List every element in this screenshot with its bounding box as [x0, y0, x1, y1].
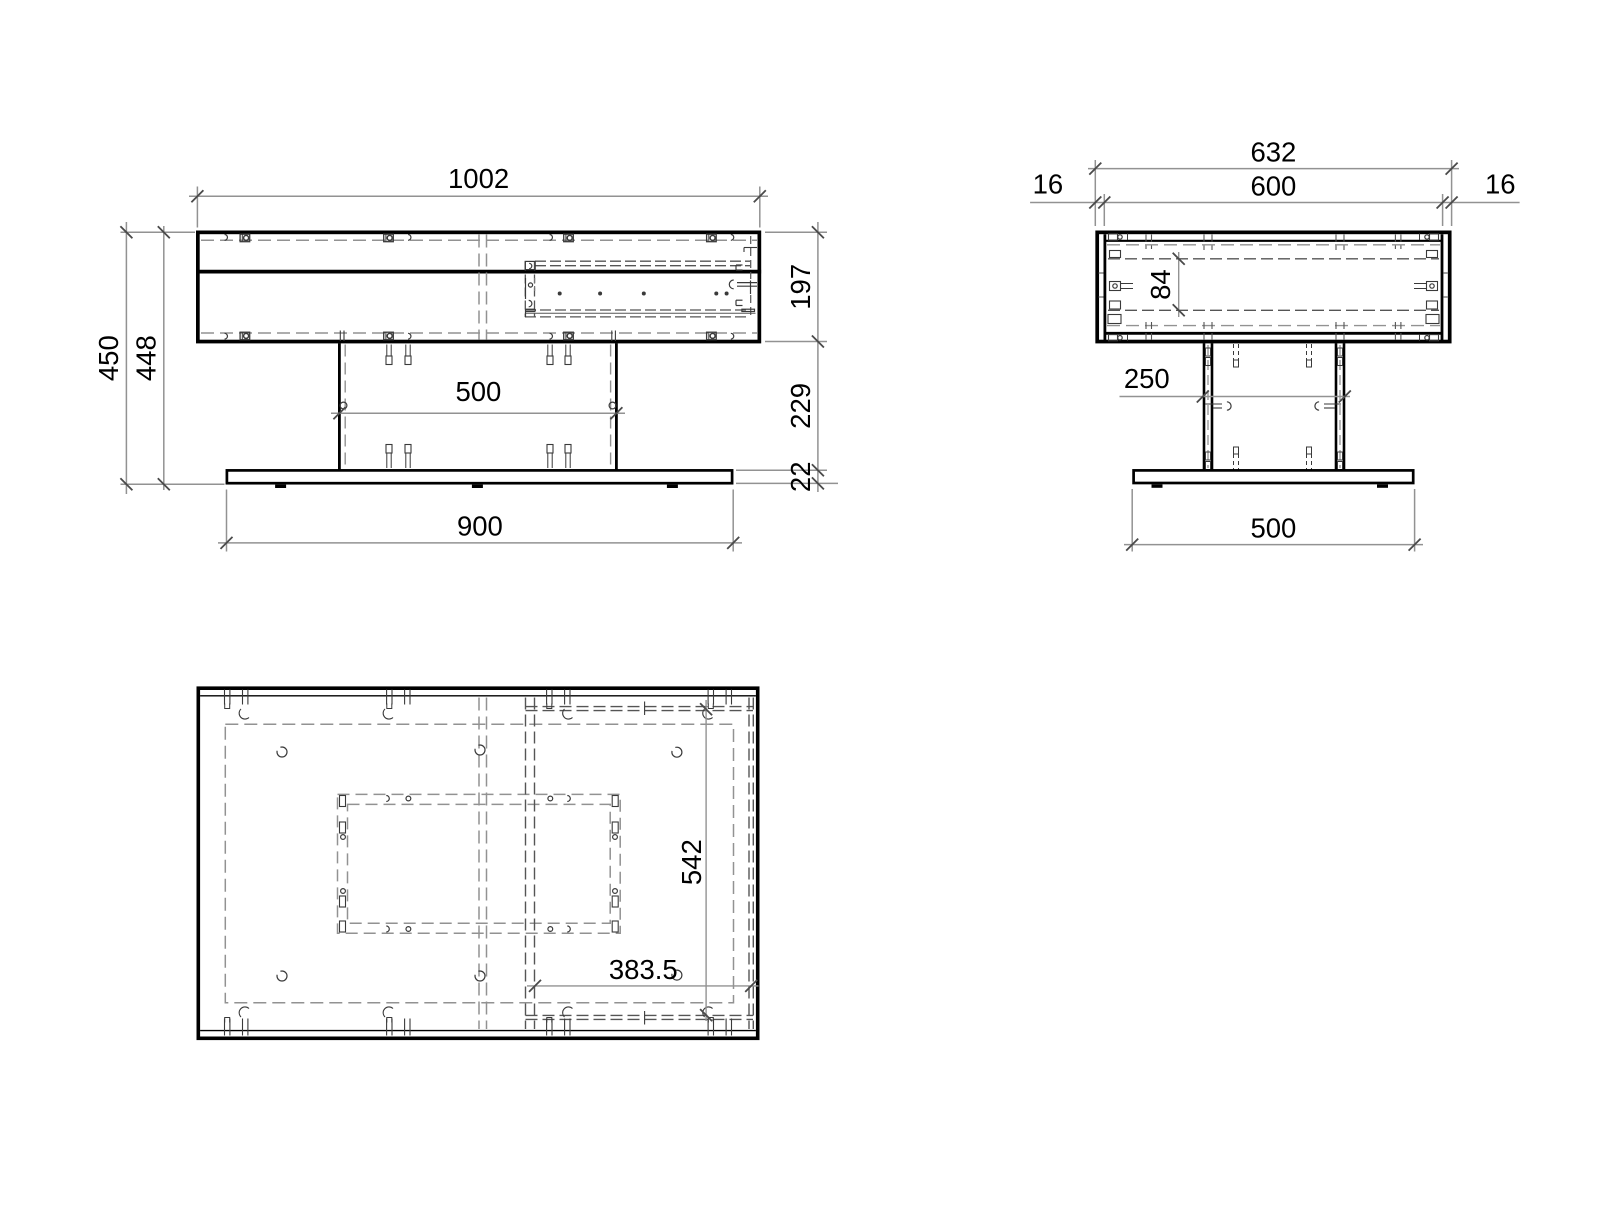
svg-text:900: 900: [457, 510, 503, 541]
svg-text:16: 16: [1485, 169, 1516, 200]
svg-text:448: 448: [130, 335, 161, 381]
svg-text:500: 500: [1250, 513, 1296, 544]
svg-text:500: 500: [455, 376, 501, 407]
svg-text:197: 197: [785, 264, 816, 310]
svg-text:229: 229: [785, 383, 816, 429]
svg-text:22: 22: [785, 462, 816, 493]
svg-text:632: 632: [1250, 137, 1296, 168]
svg-text:84: 84: [1145, 269, 1176, 300]
svg-text:1002: 1002: [448, 163, 509, 194]
svg-text:450: 450: [93, 335, 124, 381]
svg-text:250: 250: [1124, 363, 1170, 394]
svg-text:16: 16: [1033, 169, 1064, 200]
svg-text:600: 600: [1250, 170, 1296, 201]
svg-text:383.5: 383.5: [609, 954, 678, 985]
svg-text:542: 542: [676, 839, 707, 885]
